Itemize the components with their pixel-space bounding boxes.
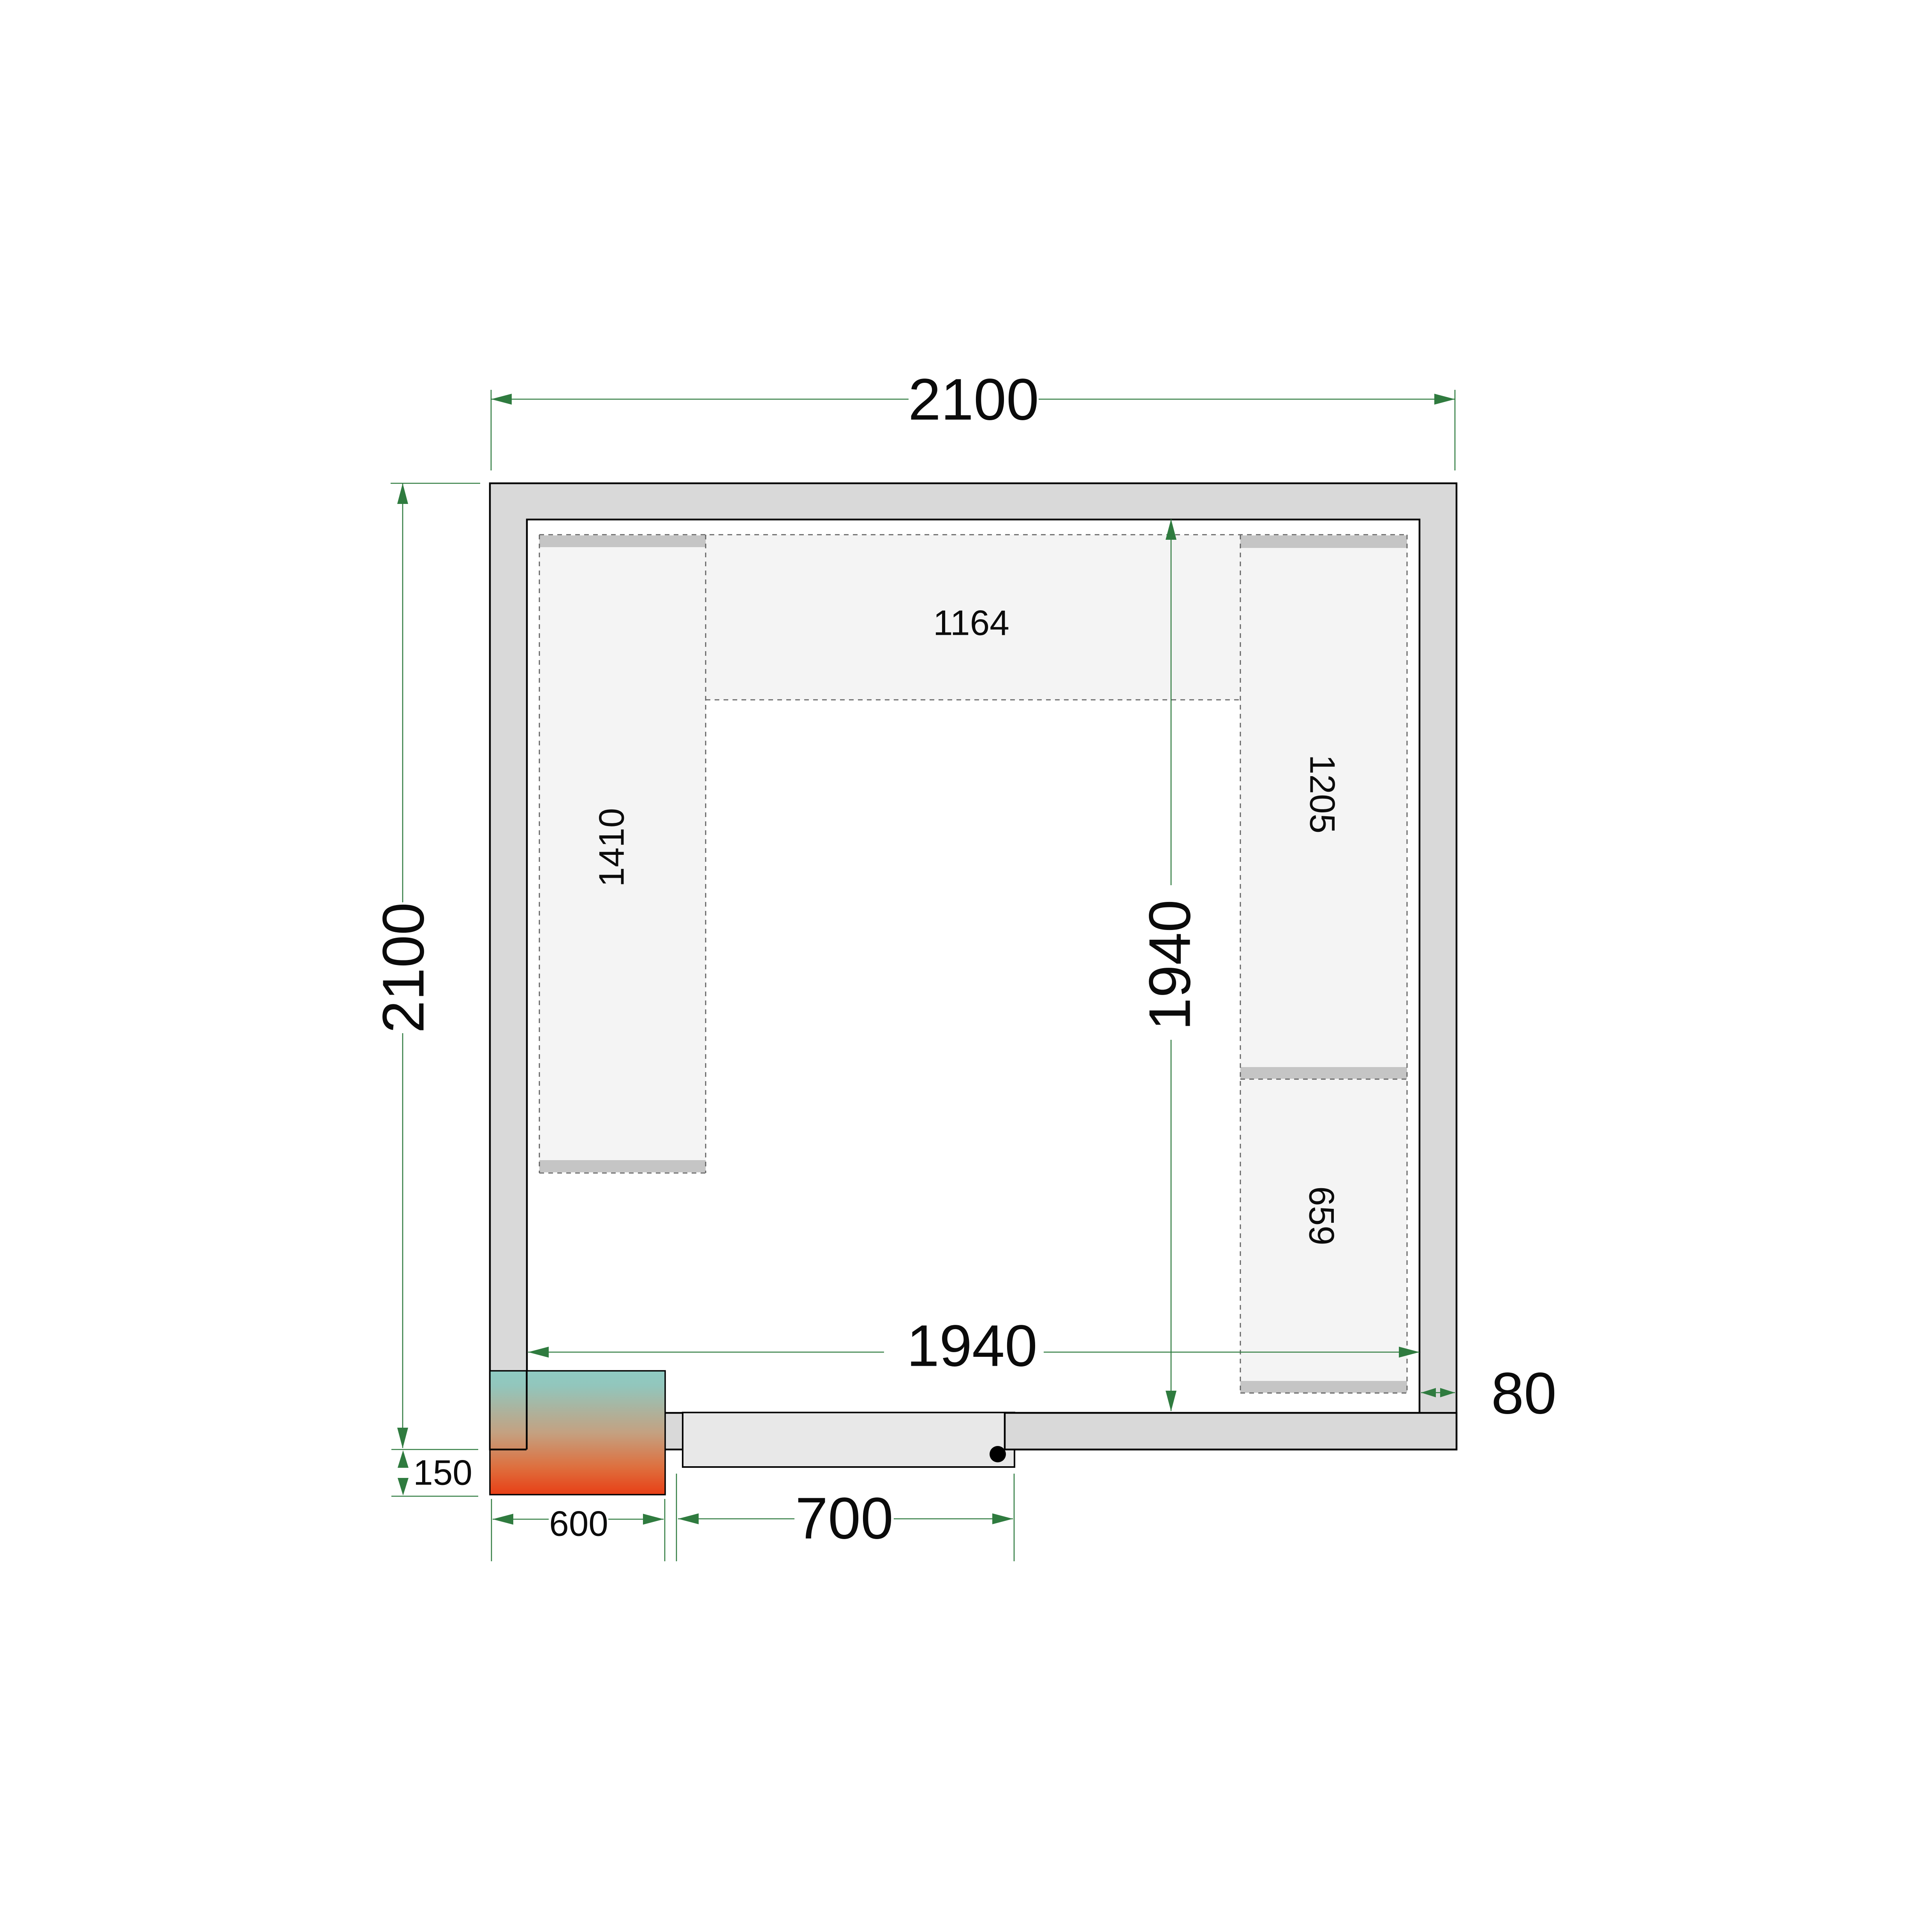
svg-text:659: 659	[1302, 1186, 1341, 1245]
svg-text:80: 80	[1491, 1360, 1557, 1426]
svg-text:2100: 2100	[908, 366, 1039, 432]
svg-text:1940: 1940	[1137, 900, 1203, 1030]
svg-text:2100: 2100	[370, 902, 436, 1033]
svg-text:1164: 1164	[933, 604, 1009, 643]
svg-text:1940: 1940	[907, 1313, 1037, 1379]
svg-text:1410: 1410	[592, 808, 632, 887]
svg-text:600: 600	[549, 1504, 608, 1544]
svg-text:150: 150	[413, 1453, 472, 1493]
svg-text:700: 700	[795, 1485, 893, 1551]
svg-text:1205: 1205	[1303, 755, 1342, 833]
